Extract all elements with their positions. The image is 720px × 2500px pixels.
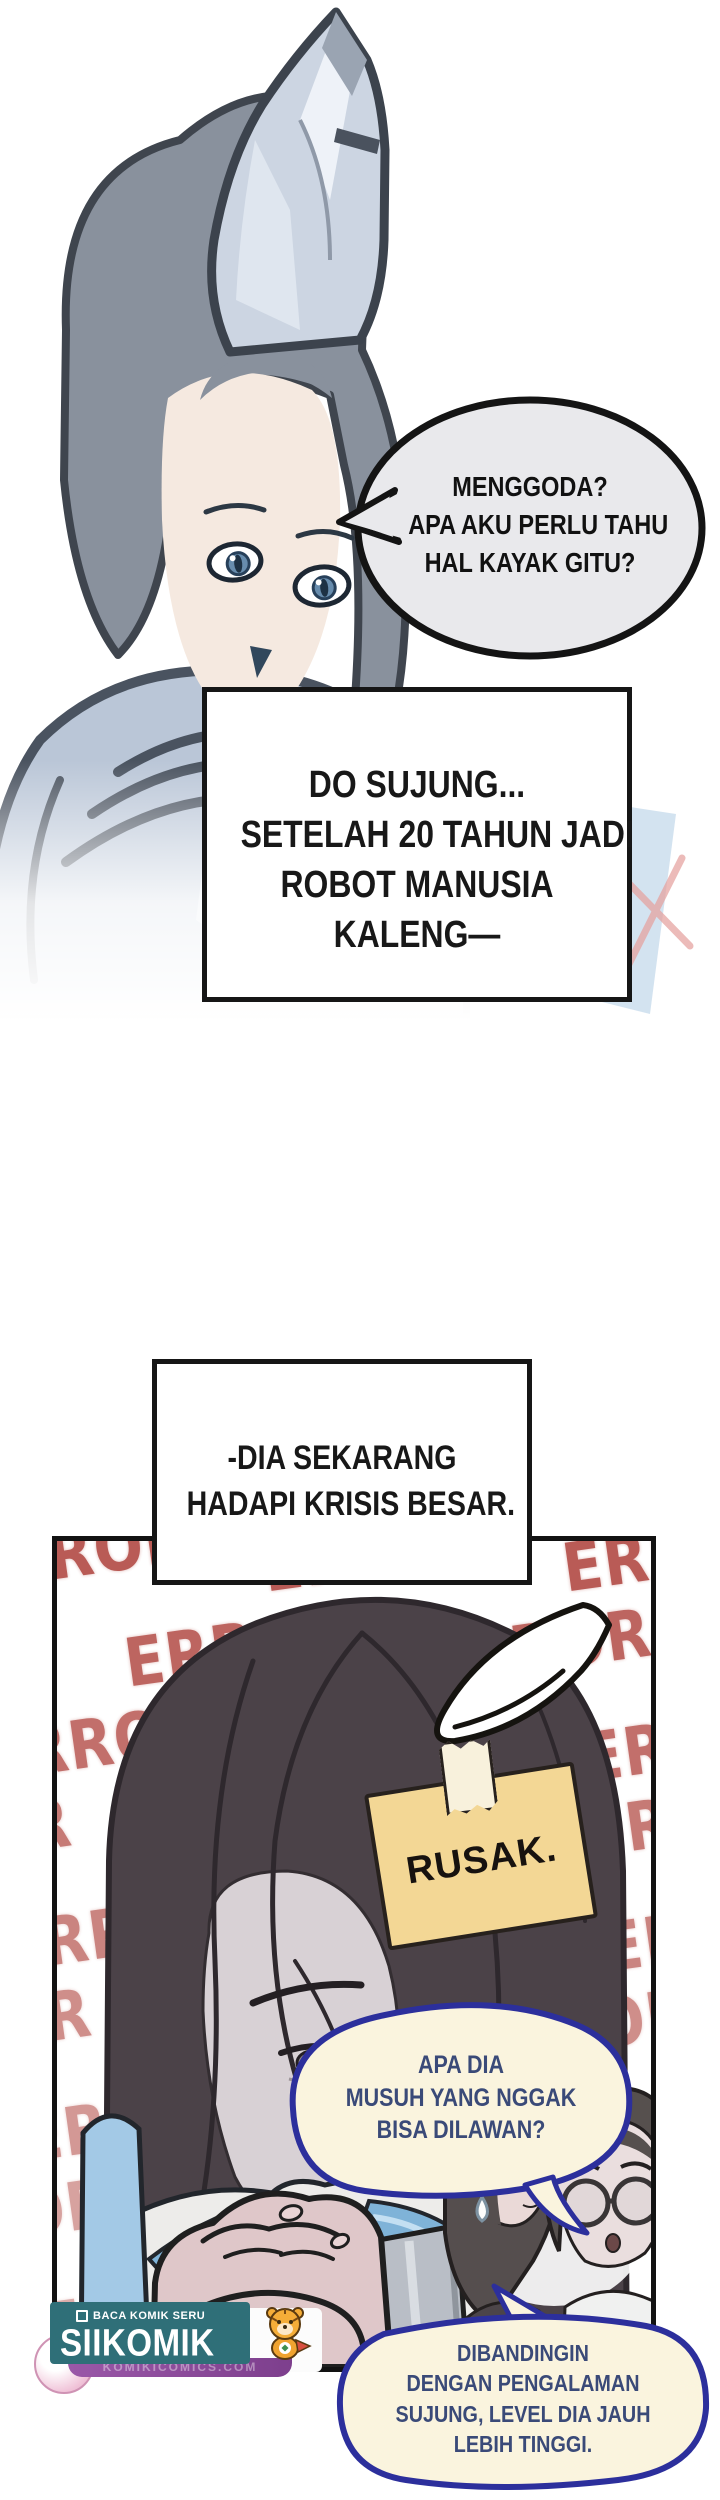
sticky-note: RUSAK. — [364, 1761, 598, 1950]
face — [162, 352, 352, 714]
narration-line: SETELAH 20 TAHUN JADI — [241, 810, 594, 860]
tape-icon — [438, 1736, 499, 1816]
badge-brand: SIIKOMIK — [60, 2321, 235, 2365]
narration-line: ROBOT MANUSIA — [241, 860, 594, 910]
error-panel: ERRORERRORERRORERRORERRORERRORERRORERROR… — [52, 1536, 656, 2372]
narration-line: HADAPI KRISIS BESAR. — [187, 1482, 498, 1528]
narration-box-2: -DIA SEKARANG HADAPI KRISIS BESAR. — [152, 1359, 532, 1585]
comic-page: MENGGODA? APA AKU PERLU TAHU HAL KAYAK G… — [0, 0, 720, 2500]
speech-bubble-grey-text: MENGGODA? APA AKU PERLU TAHU HAL KAYAK G… — [385, 468, 675, 581]
narration-line: -DIA SEKARANG — [187, 1436, 498, 1482]
tin-foil-hat — [212, 12, 385, 352]
speech-bubble-question-text: APA DIA MUSUH YANG NGGAK BISA DILAWAN? — [301, 2049, 621, 2147]
sticky-note-text: RUSAK. — [378, 1823, 586, 1897]
narration-line: KALENG— — [241, 910, 594, 960]
panel-character-illustration — [57, 1541, 651, 2367]
speech-bubble-answer-text: DIBANDINGIN DENGAN PENGALAMAN SUJUNG, LE… — [363, 2338, 683, 2459]
narration-box-1: DO SUJUNG... SETELAH 20 TAHUN JADI ROBOT… — [202, 687, 632, 1002]
narration-line: DO SUJUNG... — [241, 760, 594, 810]
siikomik-watermark-badge[interactable]: KOMIKICOMICS.COM BACA KOMIK SERU SIIKOMI… — [42, 2298, 342, 2398]
badge-teal-plate: BACA KOMIK SERU SIIKOMIK — [50, 2302, 250, 2364]
tiger-mascot-icon — [254, 2302, 316, 2364]
